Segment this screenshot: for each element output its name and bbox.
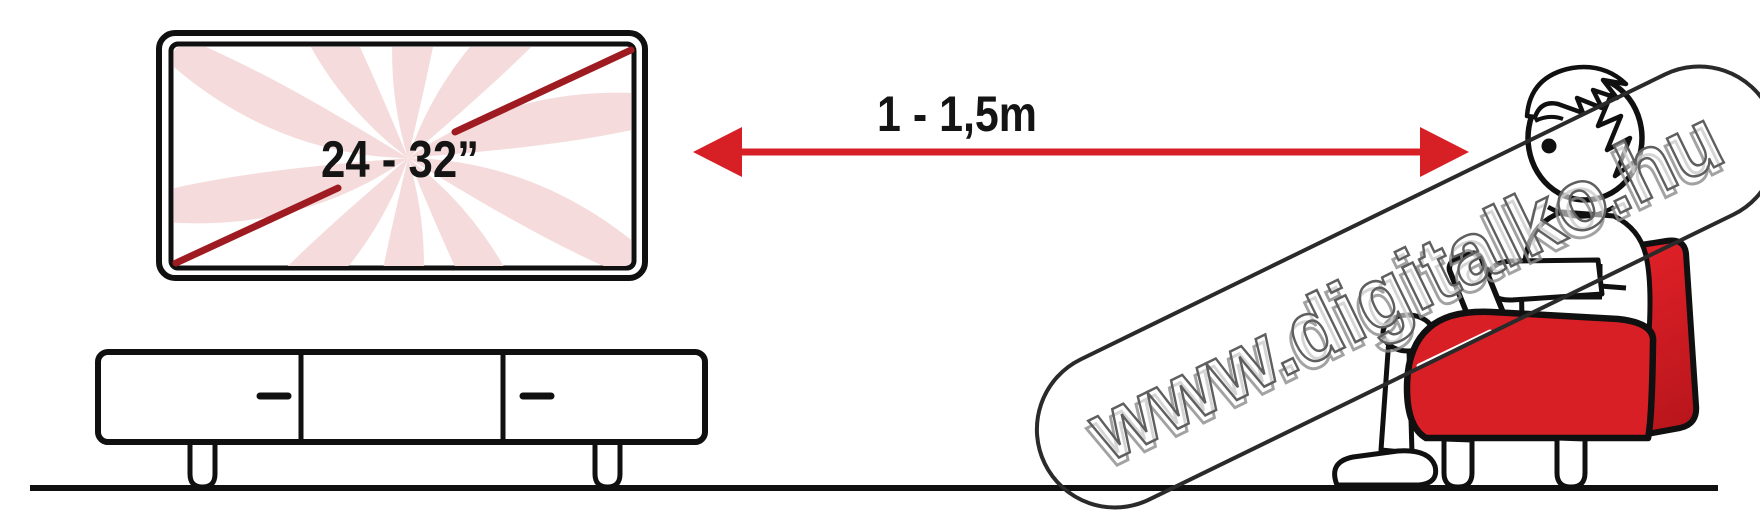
stand-right-leg (595, 442, 620, 487)
tv-stand (98, 352, 705, 487)
viewer-eye (1542, 139, 1557, 154)
viewer-foot (1335, 451, 1436, 485)
distance-label: 1 - 1,5m (877, 86, 1037, 142)
armchair-rear-leg (1557, 438, 1585, 487)
armchair-front-leg (1444, 439, 1472, 487)
armchair-seat (1407, 312, 1653, 438)
scene-illustration: 24 - 32” 1 - 1,5m (0, 0, 1760, 528)
stand-left-leg (190, 442, 215, 487)
tv-size-label: 24 - 32” (321, 131, 479, 189)
stand-cabinet (98, 352, 705, 442)
scene: 24 - 32” 1 - 1,5m (0, 0, 1760, 528)
arrow-left-head-icon (693, 127, 742, 177)
distance-arrow: 1 - 1,5m (693, 86, 1469, 177)
arrow-right-head-icon (1420, 127, 1469, 177)
